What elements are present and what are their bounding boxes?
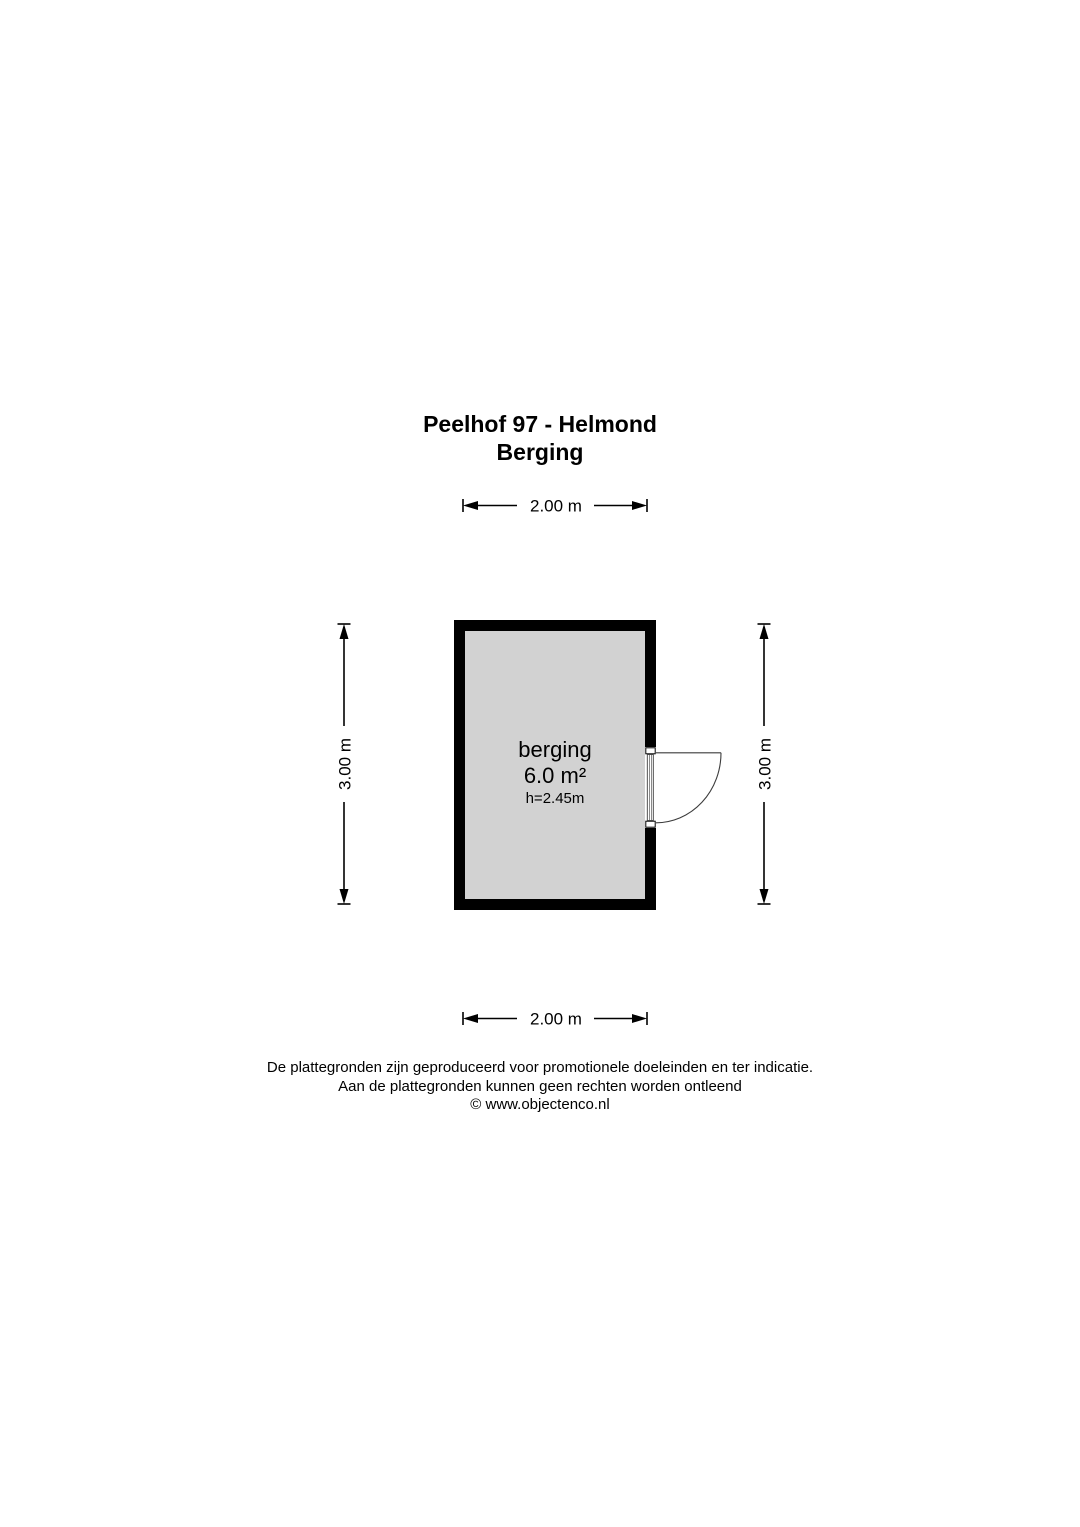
room-ceiling-height-label: h=2.45m	[526, 790, 585, 807]
disclaimer-copyright: © www.objectenco.nl	[0, 1096, 1080, 1115]
disclaimer: De plattegronden zijn geproduceerd voor …	[0, 1059, 1080, 1115]
room-area-label: 6.0 m²	[524, 763, 586, 788]
door-jamb-bottom	[646, 821, 655, 827]
dimension-left-label: 3.00 m	[336, 738, 355, 790]
dimension-top-label: 2.00 m	[530, 497, 582, 516]
door-jamb-top	[646, 748, 655, 754]
room-name-label: berging	[518, 737, 591, 762]
dimension-bottom-label: 2.00 m	[530, 1010, 582, 1029]
door-swing-arc	[656, 753, 721, 823]
door-leaf-closed	[647, 755, 653, 821]
floorplan-page: Peelhof 97 - Helmond Berging 2.00 m 2.00…	[0, 0, 1080, 1527]
disclaimer-line-1: De plattegronden zijn geproduceerd voor …	[0, 1059, 1080, 1078]
dimension-right-label: 3.00 m	[756, 738, 775, 790]
door	[645, 747, 721, 828]
floorplan-drawing: 2.00 m 2.00 m 3.00 m	[0, 0, 1080, 1527]
disclaimer-line-2: Aan de plattegronden kunnen geen rechten…	[0, 1078, 1080, 1097]
